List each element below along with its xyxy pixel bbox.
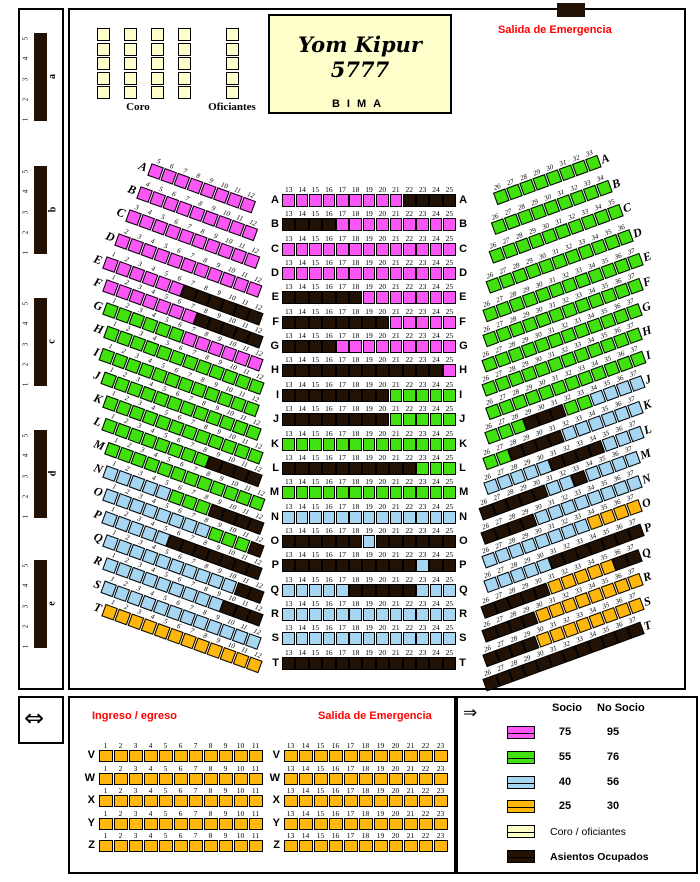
seat-bottom-left-V6[interactable] [174, 750, 188, 762]
seat-bottom-right-Y16[interactable] [329, 818, 343, 830]
seat-center-K15[interactable] [309, 438, 322, 451]
seat-bottom-left-Y3[interactable] [129, 818, 143, 830]
seat-bottom-left-W2[interactable] [114, 773, 128, 785]
seat-bottom-left-X8[interactable] [204, 795, 218, 807]
seat-center-K14[interactable] [296, 438, 309, 451]
seat-center-M17[interactable] [336, 486, 349, 499]
seat-center-N14[interactable] [296, 511, 309, 524]
seat-center-L25[interactable] [443, 462, 456, 475]
seat-center-C17[interactable] [336, 243, 349, 256]
seat-oficiantes-col1-5[interactable] [226, 86, 239, 99]
seat-bottom-left-W11[interactable] [249, 773, 263, 785]
seat-center-K18[interactable] [349, 438, 362, 451]
seat-oficiantes-col1-2[interactable] [226, 43, 239, 56]
seat-center-G25[interactable] [443, 340, 456, 353]
seat-bottom-left-W9[interactable] [219, 773, 233, 785]
seat-bottom-left-X4[interactable] [144, 795, 158, 807]
seat-center-N15[interactable] [309, 511, 322, 524]
seat-center-K20[interactable] [376, 438, 389, 451]
seat-center-A14[interactable] [296, 194, 309, 207]
seat-bottom-right-X22[interactable] [419, 795, 433, 807]
seat-bottom-right-X17[interactable] [344, 795, 358, 807]
seat-coro-col3-2[interactable] [151, 43, 164, 56]
seat-bottom-left-Y10[interactable] [234, 818, 248, 830]
seat-center-G23[interactable] [416, 340, 429, 353]
seat-bottom-left-Z6[interactable] [174, 840, 188, 852]
seat-center-F25[interactable] [443, 316, 456, 329]
seat-bottom-left-Z9[interactable] [219, 840, 233, 852]
seat-bottom-right-W15[interactable] [314, 773, 328, 785]
seat-bottom-right-X13[interactable] [284, 795, 298, 807]
seat-bottom-left-Y9[interactable] [219, 818, 233, 830]
seat-bottom-right-Z13[interactable] [284, 840, 298, 852]
seat-center-Q24[interactable] [430, 584, 443, 597]
seat-center-A13[interactable] [282, 194, 295, 207]
seat-center-Q17[interactable] [336, 584, 349, 597]
seat-bottom-right-W18[interactable] [359, 773, 373, 785]
seat-center-S20[interactable] [376, 632, 389, 645]
seat-bottom-left-Y5[interactable] [159, 818, 173, 830]
seat-coro-col4-1[interactable] [178, 28, 191, 41]
seat-center-G17[interactable] [336, 340, 349, 353]
seat-bottom-right-Z14[interactable] [299, 840, 313, 852]
seat-center-C22[interactable] [403, 243, 416, 256]
seat-center-S21[interactable] [390, 632, 403, 645]
seat-coro-col2-3[interactable] [124, 57, 137, 70]
seat-number: 1 [104, 787, 108, 795]
seat-bottom-left-W8[interactable] [204, 773, 218, 785]
seat-center-C23[interactable] [416, 243, 429, 256]
seat-coro-col2-5[interactable] [124, 86, 137, 99]
seat-center-C21[interactable] [390, 243, 403, 256]
seat-center-N25[interactable] [443, 511, 456, 524]
seat-center-C14[interactable] [296, 243, 309, 256]
seat-center-B23[interactable] [416, 218, 429, 231]
seat-center-G22[interactable] [403, 340, 416, 353]
seat-center-Q15[interactable] [309, 584, 322, 597]
seat-bottom-left-V4[interactable] [144, 750, 158, 762]
seat-center-E19[interactable] [363, 291, 376, 304]
seat-bottom-right-V14[interactable] [299, 750, 313, 762]
seat-center-N17[interactable] [336, 511, 349, 524]
seat-center-D16[interactable] [323, 267, 336, 280]
seat-center-D13[interactable] [282, 267, 295, 280]
seat-center-E20[interactable] [376, 291, 389, 304]
seat-bottom-left-Z5[interactable] [159, 840, 173, 852]
seat-center-K16[interactable] [323, 438, 336, 451]
seat-center-B21[interactable] [390, 218, 403, 231]
seat-center-M20[interactable] [376, 486, 389, 499]
seat-bottom-left-Y1[interactable] [99, 818, 113, 830]
row-label: V [266, 749, 280, 762]
seat-center-O25-occupied [443, 535, 456, 548]
seat-center-B19[interactable] [363, 218, 376, 231]
seat-center-R15[interactable] [309, 608, 322, 621]
seat-center-D20[interactable] [376, 267, 389, 280]
seat-coro-col2-4[interactable] [124, 72, 137, 85]
seat-center-C18[interactable] [349, 243, 362, 256]
seat-bottom-right-Z16[interactable] [329, 840, 343, 852]
seat-number: 9 [224, 810, 228, 818]
seat-center-S22[interactable] [403, 632, 416, 645]
seat-bottom-left-Y7[interactable] [189, 818, 203, 830]
seat-center-R16[interactable] [323, 608, 336, 621]
seat-center-R18[interactable] [349, 608, 362, 621]
seat-bottom-right-Z17[interactable] [344, 840, 358, 852]
seat-center-R21[interactable] [390, 608, 403, 621]
seat-bottom-left-V11[interactable] [249, 750, 263, 762]
seat-cell: 25 [443, 503, 456, 524]
seat-center-D18[interactable] [349, 267, 362, 280]
seat-bottom-right-V18[interactable] [359, 750, 373, 762]
seat-center-N13[interactable] [282, 511, 295, 524]
seat-bottom-right-Y22[interactable] [419, 818, 433, 830]
seat-cell: 20 [376, 332, 389, 353]
seat-bottom-left-W7[interactable] [189, 773, 203, 785]
seat-center-A20[interactable] [376, 194, 389, 207]
seat-center-D24[interactable] [430, 267, 443, 280]
seat-center-I21[interactable] [390, 389, 403, 402]
seat-center-K22[interactable] [403, 438, 416, 451]
seat-bottom-left-Z3[interactable] [129, 840, 143, 852]
seat-center-J24[interactable] [430, 413, 443, 426]
seat-center-M22[interactable] [403, 486, 416, 499]
seat-bottom-right-X16[interactable] [329, 795, 343, 807]
seat-bottom-left-X1[interactable] [99, 795, 113, 807]
seat-center-N18[interactable] [349, 511, 362, 524]
seat-coro-col3-3[interactable] [151, 57, 164, 70]
seat-center-K13[interactable] [282, 438, 295, 451]
seat-bottom-left-Z10[interactable] [234, 840, 248, 852]
seat-bottom-left-V9[interactable] [219, 750, 233, 762]
seat-bottom-right-X20[interactable] [389, 795, 403, 807]
seat-center-F24[interactable] [430, 316, 443, 329]
seat-number: 2 [23, 363, 30, 367]
seat-center-H25[interactable] [443, 364, 456, 377]
seat-center-G19[interactable] [363, 340, 376, 353]
seat-bottom-right-X18[interactable] [359, 795, 373, 807]
seat-center-E25[interactable] [443, 291, 456, 304]
seat-center-Q13[interactable] [282, 584, 295, 597]
seat-bottom-right-Y17[interactable] [344, 818, 358, 830]
seat-center-C24[interactable] [430, 243, 443, 256]
seat-coro-col3-5[interactable] [151, 86, 164, 99]
seat-bottom-right-W22[interactable] [419, 773, 433, 785]
seat-center-B17[interactable] [336, 218, 349, 231]
seat-bottom-right-V23[interactable] [434, 750, 448, 762]
seat-center-S24[interactable] [430, 632, 443, 645]
seat-center-R14[interactable] [296, 608, 309, 621]
seat-bottom-left-W1[interactable] [99, 773, 113, 785]
seat-center-D21[interactable] [390, 267, 403, 280]
seat-bottom-right-W19[interactable] [374, 773, 388, 785]
seat-center-A18[interactable] [349, 194, 362, 207]
seat-bottom-right-Y20[interactable] [389, 818, 403, 830]
seat-center-N24[interactable] [430, 511, 443, 524]
seat-cell: 17 [336, 478, 349, 499]
seat-bottom-right-X15[interactable] [314, 795, 328, 807]
seat-center-M25[interactable] [443, 486, 456, 499]
seat-bottom-right-X21[interactable] [404, 795, 418, 807]
seat-bottom-left-Z7[interactable] [189, 840, 203, 852]
seat-bottom-left-Z2[interactable] [114, 840, 128, 852]
seat-center-C16[interactable] [323, 243, 336, 256]
seat-bottom-right-Y19[interactable] [374, 818, 388, 830]
seat-bottom-right-Y13[interactable] [284, 818, 298, 830]
seat-oficiantes-col1-4[interactable] [226, 72, 239, 85]
seat-center-I24[interactable] [430, 389, 443, 402]
seat-center-D23[interactable] [416, 267, 429, 280]
seat-bottom-left-X2[interactable] [114, 795, 128, 807]
seat-bottom-right-V19[interactable] [374, 750, 388, 762]
seat-bottom-right-V22[interactable] [419, 750, 433, 762]
seat-center-R24[interactable] [430, 608, 443, 621]
seat-center-C25[interactable] [443, 243, 456, 256]
seat-bottom-right-V21[interactable] [404, 750, 418, 762]
seat-center-N19[interactable] [363, 511, 376, 524]
seat-center-G18[interactable] [349, 340, 362, 353]
seat-coro-col4-2[interactable] [178, 43, 191, 56]
seat-bottom-right-W23[interactable] [434, 773, 448, 785]
seat-center-M13[interactable] [282, 486, 295, 499]
seat-center-K19[interactable] [363, 438, 376, 451]
seat-center-B25[interactable] [443, 218, 456, 231]
seat-bottom-left-W4[interactable] [144, 773, 158, 785]
seat-bottom-left-Y8[interactable] [204, 818, 218, 830]
seat-center-A15[interactable] [309, 194, 322, 207]
seat-center-F22[interactable] [403, 316, 416, 329]
seat-center-S16[interactable] [323, 632, 336, 645]
seat-center-G20[interactable] [376, 340, 389, 353]
seat-center-F23[interactable] [416, 316, 429, 329]
seat-center-R25[interactable] [443, 608, 456, 621]
seat-center-D22[interactable] [403, 267, 416, 280]
seat-bottom-left-Y6[interactable] [174, 818, 188, 830]
seat-bottom-right-Z18[interactable] [359, 840, 373, 852]
seat-center-L23[interactable] [416, 462, 429, 475]
seat-center-E24[interactable] [430, 291, 443, 304]
seat-center-B24[interactable] [430, 218, 443, 231]
seat-center-M16[interactable] [323, 486, 336, 499]
seat-center-Q23[interactable] [416, 584, 429, 597]
seat-center-M23[interactable] [416, 486, 429, 499]
seat-bottom-right-W21[interactable] [404, 773, 418, 785]
seat-bottom-right-Z20[interactable] [389, 840, 403, 852]
seat-bottom-left-Z8[interactable] [204, 840, 218, 852]
seat-center-G21[interactable] [390, 340, 403, 353]
seat-bottom-left-Y4[interactable] [144, 818, 158, 830]
seat-center-D14[interactable] [296, 267, 309, 280]
seat-center-E22[interactable] [403, 291, 416, 304]
seat-bottom-right-Y15[interactable] [314, 818, 328, 830]
seat-bottom-right-X19[interactable] [374, 795, 388, 807]
seat-center-P23[interactable] [416, 559, 429, 572]
seat-coro-col3-4[interactable] [151, 72, 164, 85]
seat-bottom-right-W13[interactable] [284, 773, 298, 785]
seat-center-M19[interactable] [363, 486, 376, 499]
seat-coro-col3-1[interactable] [151, 28, 164, 41]
seat-bottom-right-V17[interactable] [344, 750, 358, 762]
seat-bottom-left-W10[interactable] [234, 773, 248, 785]
seat-coro-col1-5[interactable] [97, 86, 110, 99]
seat-center-R13[interactable] [282, 608, 295, 621]
seat-coro-col2-2[interactable] [124, 43, 137, 56]
seat-center-S13[interactable] [282, 632, 295, 645]
seat-bottom-left-X5[interactable] [159, 795, 173, 807]
seat-center-F21[interactable] [390, 316, 403, 329]
seat-center-S18[interactable] [349, 632, 362, 645]
seat-center-C19[interactable] [363, 243, 376, 256]
seat-bottom-left-V10[interactable] [234, 750, 248, 762]
seat-bottom-right-V16[interactable] [329, 750, 343, 762]
seat-oficiantes-col1-3[interactable] [226, 57, 239, 70]
seat-bottom-left-V8[interactable] [204, 750, 218, 762]
seat-center-C20[interactable] [376, 243, 389, 256]
seat-bottom-left-V5[interactable] [159, 750, 173, 762]
seat-bottom-right-Y23[interactable] [434, 818, 448, 830]
seat-center-K17[interactable] [336, 438, 349, 451]
seat-bottom-left-V1[interactable] [99, 750, 113, 762]
seat-cell: 16 [322, 332, 335, 353]
seat-coro-col1-4[interactable] [97, 72, 110, 85]
seat-center-M18[interactable] [349, 486, 362, 499]
seat-bottom-left-Z11[interactable] [249, 840, 263, 852]
seat-center-D25[interactable] [443, 267, 456, 280]
seat-center-O19[interactable] [363, 535, 376, 548]
seat-bottom-left-Y2[interactable] [114, 818, 128, 830]
seat-center-K21[interactable] [390, 438, 403, 451]
seat-center-E23[interactable] [416, 291, 429, 304]
seat-center-N23[interactable] [416, 511, 429, 524]
seat-bottom-right-V20[interactable] [389, 750, 403, 762]
seat-bottom-left-Z4[interactable] [144, 840, 158, 852]
seat-center-S23[interactable] [416, 632, 429, 645]
seat-center-K24[interactable] [430, 438, 443, 451]
seat-coro-col1-3[interactable] [97, 57, 110, 70]
seat-bottom-right-W16[interactable] [329, 773, 343, 785]
seat-center-N16[interactable] [323, 511, 336, 524]
seat-bottom-left-Z1[interactable] [99, 840, 113, 852]
seat-center-N22[interactable] [403, 511, 416, 524]
seat-center-M15[interactable] [309, 486, 322, 499]
seat-bottom-right-Z19[interactable] [374, 840, 388, 852]
seat-bottom-right-Z23[interactable] [434, 840, 448, 852]
seat-center-R23[interactable] [416, 608, 429, 621]
seat-bottom-left-X6[interactable] [174, 795, 188, 807]
seat-bottom-right-X14[interactable] [299, 795, 313, 807]
seat-center-M14[interactable] [296, 486, 309, 499]
seat-number: 11 [252, 765, 259, 773]
seat-bottom-left-V7[interactable] [189, 750, 203, 762]
seat-oficiantes-col1-1[interactable] [226, 28, 239, 41]
seat-center-E21[interactable] [390, 291, 403, 304]
seat-center-D17[interactable] [336, 267, 349, 280]
seat-center-I23[interactable] [416, 389, 429, 402]
seat-bottom-right-Y21[interactable] [404, 818, 418, 830]
seat-bottom-right-Z21[interactable] [404, 840, 418, 852]
seat-center-C13[interactable] [282, 243, 295, 256]
seat-center-H18-occupied [349, 364, 362, 377]
seat-center-N21[interactable] [390, 511, 403, 524]
seat-center-R19[interactable] [363, 608, 376, 621]
seat-bottom-left-W6[interactable] [174, 773, 188, 785]
seat-center-R20[interactable] [376, 608, 389, 621]
seat-center-L24[interactable] [430, 462, 443, 475]
seat-bottom-left-X7[interactable] [189, 795, 203, 807]
seat-bottom-right-Y18[interactable] [359, 818, 373, 830]
seat-center-K23[interactable] [416, 438, 429, 451]
seat-coro-col4-4[interactable] [178, 72, 191, 85]
seat-bottom-left-V2[interactable] [114, 750, 128, 762]
seat-bottom-left-X9[interactable] [219, 795, 233, 807]
seat-bottom-left-X11[interactable] [249, 795, 263, 807]
seat-bottom-right-W14[interactable] [299, 773, 313, 785]
seat-bottom-left-X10[interactable] [234, 795, 248, 807]
seat-center-J21[interactable] [390, 413, 403, 426]
seat-center-B20[interactable] [376, 218, 389, 231]
seat-bottom-right-X23[interactable] [434, 795, 448, 807]
seat-center-A19[interactable] [363, 194, 376, 207]
seat-coro-col2-1[interactable] [124, 28, 137, 41]
seat-center-M24[interactable] [430, 486, 443, 499]
seat-center-S14[interactable] [296, 632, 309, 645]
seat-center-B18[interactable] [349, 218, 362, 231]
seat-bottom-right-Z15[interactable] [314, 840, 328, 852]
seat-bottom-right-V13[interactable] [284, 750, 298, 762]
seat-center-R17[interactable] [336, 608, 349, 621]
seat-coro-col1-2[interactable] [97, 43, 110, 56]
seat-center-S25[interactable] [443, 632, 456, 645]
seat-center-Q14[interactable] [296, 584, 309, 597]
seat-bottom-left-W3[interactable] [129, 773, 143, 785]
seat-center-I22[interactable] [403, 389, 416, 402]
seat-bottom-left-W5[interactable] [159, 773, 173, 785]
seat-center-K25[interactable] [443, 438, 456, 451]
seat-bottom-left-Y11[interactable] [249, 818, 263, 830]
seat-center-J23[interactable] [416, 413, 429, 426]
seat-center-Q25[interactable] [443, 584, 456, 597]
seat-bottom-left-X3[interactable] [129, 795, 143, 807]
seat-center-I25[interactable] [443, 389, 456, 402]
seat-center-R22[interactable] [403, 608, 416, 621]
seat-center-S15[interactable] [309, 632, 322, 645]
seat-bottom-right-V15[interactable] [314, 750, 328, 762]
seat-coro-col1-1[interactable] [97, 28, 110, 41]
seat-center-M21[interactable] [390, 486, 403, 499]
seat-coro-col4-3[interactable] [178, 57, 191, 70]
seat-center-J25[interactable] [443, 413, 456, 426]
seat-center-A21[interactable] [390, 194, 403, 207]
seat-center-B22[interactable] [403, 218, 416, 231]
seat-bottom-right-W17[interactable] [344, 773, 358, 785]
seat-coro-col4-5[interactable] [178, 86, 191, 99]
seat-bottom-right-Z22[interactable] [419, 840, 433, 852]
seat-center-S17[interactable] [336, 632, 349, 645]
seat-bottom-left-V3[interactable] [129, 750, 143, 762]
seat-center-J22[interactable] [403, 413, 416, 426]
seat-center-A16[interactable] [323, 194, 336, 207]
seat-center-D19[interactable] [363, 267, 376, 280]
seat-center-G24[interactable] [430, 340, 443, 353]
seat-bottom-right-Y14[interactable] [299, 818, 313, 830]
seat-center-N20[interactable] [376, 511, 389, 524]
seat-center-A17[interactable] [336, 194, 349, 207]
seat-center-Q16[interactable] [323, 584, 336, 597]
seat-center-D15[interactable] [309, 267, 322, 280]
seat-center-S19[interactable] [363, 632, 376, 645]
seat-center-C15[interactable] [309, 243, 322, 256]
seat-bottom-right-W20[interactable] [389, 773, 403, 785]
